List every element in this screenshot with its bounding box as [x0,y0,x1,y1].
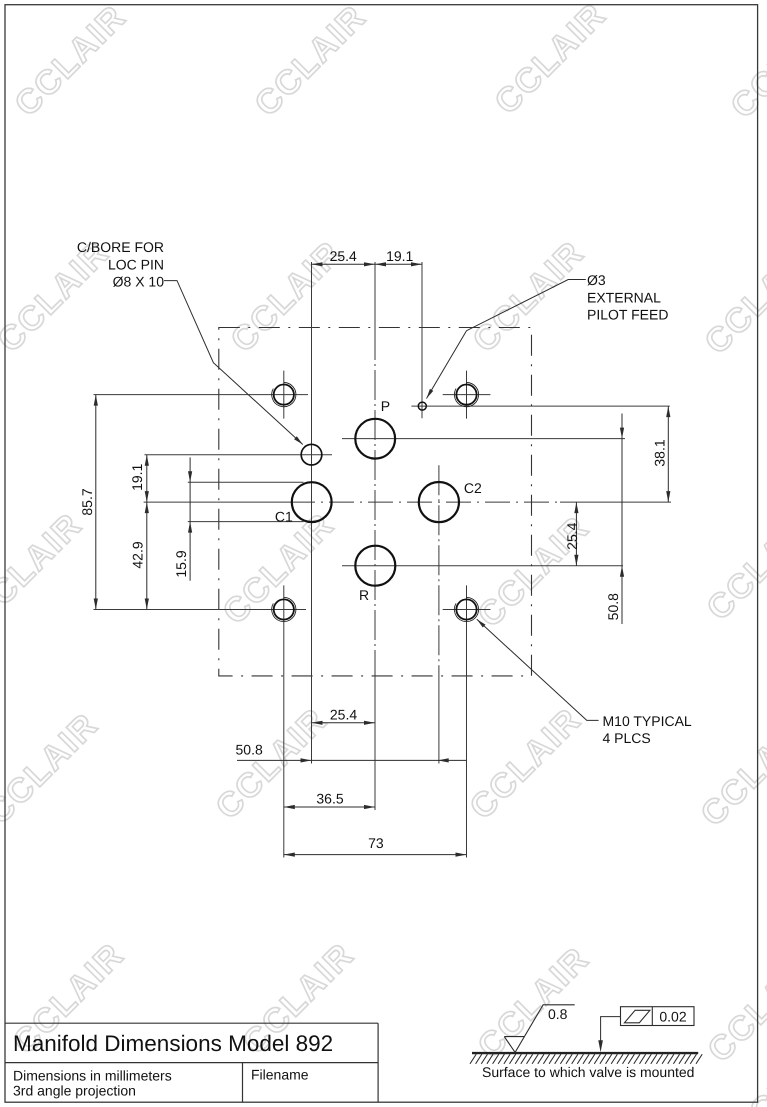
svg-text:C2: C2 [464,480,482,496]
svg-text:M10 TYPICAL: M10 TYPICAL [603,713,692,729]
svg-text:Dimensions in millimeters: Dimensions in millimeters [13,1068,172,1084]
svg-text:C/BORE FOR: C/BORE FOR [77,239,164,255]
svg-text:R: R [359,587,369,603]
svg-text:85.7: 85.7 [79,488,95,515]
svg-text:4 PLCS: 4 PLCS [603,730,651,746]
svg-text:0.02: 0.02 [659,1008,686,1024]
svg-text:19.1: 19.1 [386,248,413,264]
svg-text:Surface to which valve is moun: Surface to which valve is mounted [482,1064,694,1080]
svg-text:73: 73 [368,835,384,851]
svg-text:Filename: Filename [251,1067,309,1083]
svg-text:Ø8 X 10: Ø8 X 10 [113,274,165,290]
svg-text:0.8: 0.8 [548,1006,568,1022]
svg-text:36.5: 36.5 [316,790,343,806]
svg-text:C1: C1 [275,509,293,525]
svg-text:3rd angle projection: 3rd angle projection [13,1082,136,1098]
svg-text:38.1: 38.1 [652,439,668,466]
svg-text:PILOT FEED: PILOT FEED [587,307,668,323]
svg-text:LOC PIN: LOC PIN [108,256,164,272]
svg-text:15.9: 15.9 [173,550,189,577]
svg-text:50.8: 50.8 [605,593,621,620]
svg-text:25.4: 25.4 [330,706,357,722]
svg-text:EXTERNAL: EXTERNAL [587,289,661,305]
svg-text:Manifold Dimensions Model 892: Manifold Dimensions Model 892 [13,1031,333,1056]
svg-text:50.8: 50.8 [236,742,263,758]
svg-text:42.9: 42.9 [130,541,146,568]
svg-text:25.4: 25.4 [564,522,580,549]
svg-text:25.4: 25.4 [330,248,357,264]
svg-text:Ø3: Ø3 [587,272,606,288]
svg-text:19.1: 19.1 [129,463,145,490]
svg-text:P: P [381,398,390,414]
